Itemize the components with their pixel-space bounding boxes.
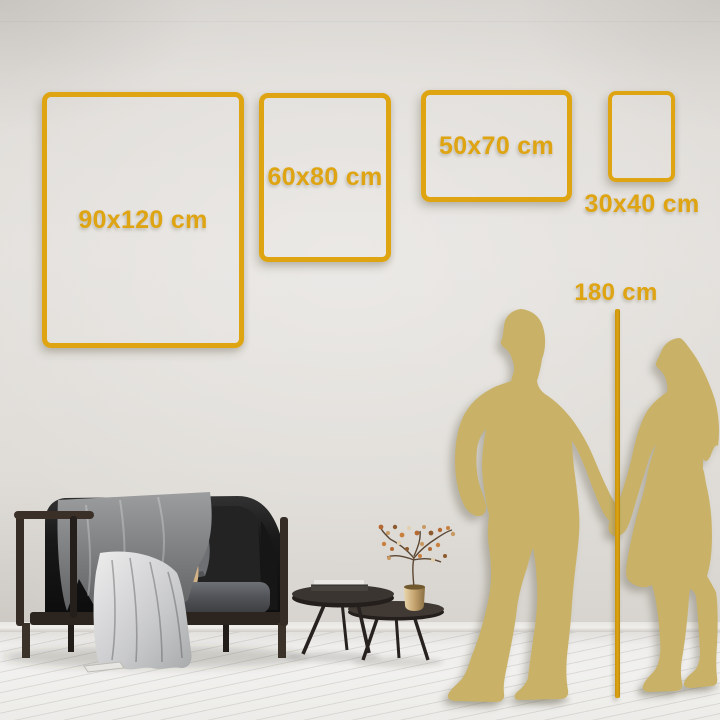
size-frame-60x80: 60x80 cm xyxy=(259,93,391,262)
size-frame-30x40 xyxy=(608,91,675,182)
size-comparison-scene: 90x120 cm 60x80 cm 50x70 cm 30x40 cm 180… xyxy=(0,0,720,720)
overlay-labels: 90x120 cm 60x80 cm 50x70 cm 30x40 cm 180… xyxy=(0,0,720,720)
size-label-60x80: 60x80 cm xyxy=(268,163,383,192)
size-label-30x40: 30x40 cm xyxy=(576,190,708,219)
height-marker-line xyxy=(615,309,620,698)
size-frame-50x70: 50x70 cm xyxy=(421,90,572,202)
size-label-90x120: 90x120 cm xyxy=(78,206,207,235)
size-label-50x70: 50x70 cm xyxy=(439,132,554,161)
height-marker-label: 180 cm xyxy=(555,279,677,307)
size-frame-90x120: 90x120 cm xyxy=(42,92,244,348)
